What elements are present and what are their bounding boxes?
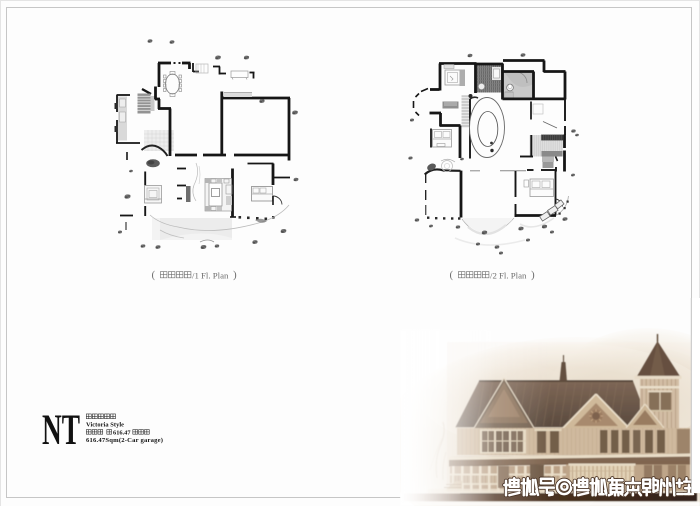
svg-text:NT: NT — [42, 407, 80, 450]
svg-text:616.47Sqm(2-Car garage): 616.47Sqm(2-Car garage) — [86, 437, 163, 444]
svg-text:): ) — [233, 269, 237, 281]
svg-text:(: ( — [152, 269, 156, 281]
svg-text:/1 Fl. Plan: /1 Fl. Plan — [192, 271, 229, 281]
svg-text:/2 Fl. Plan: /2 Fl. Plan — [490, 271, 527, 281]
svg-text:(: ( — [450, 269, 454, 281]
svg-text:Victoria Style: Victoria Style — [86, 422, 124, 429]
svg-text:): ) — [531, 269, 535, 281]
svg-text:616.47: 616.47 — [113, 430, 131, 437]
